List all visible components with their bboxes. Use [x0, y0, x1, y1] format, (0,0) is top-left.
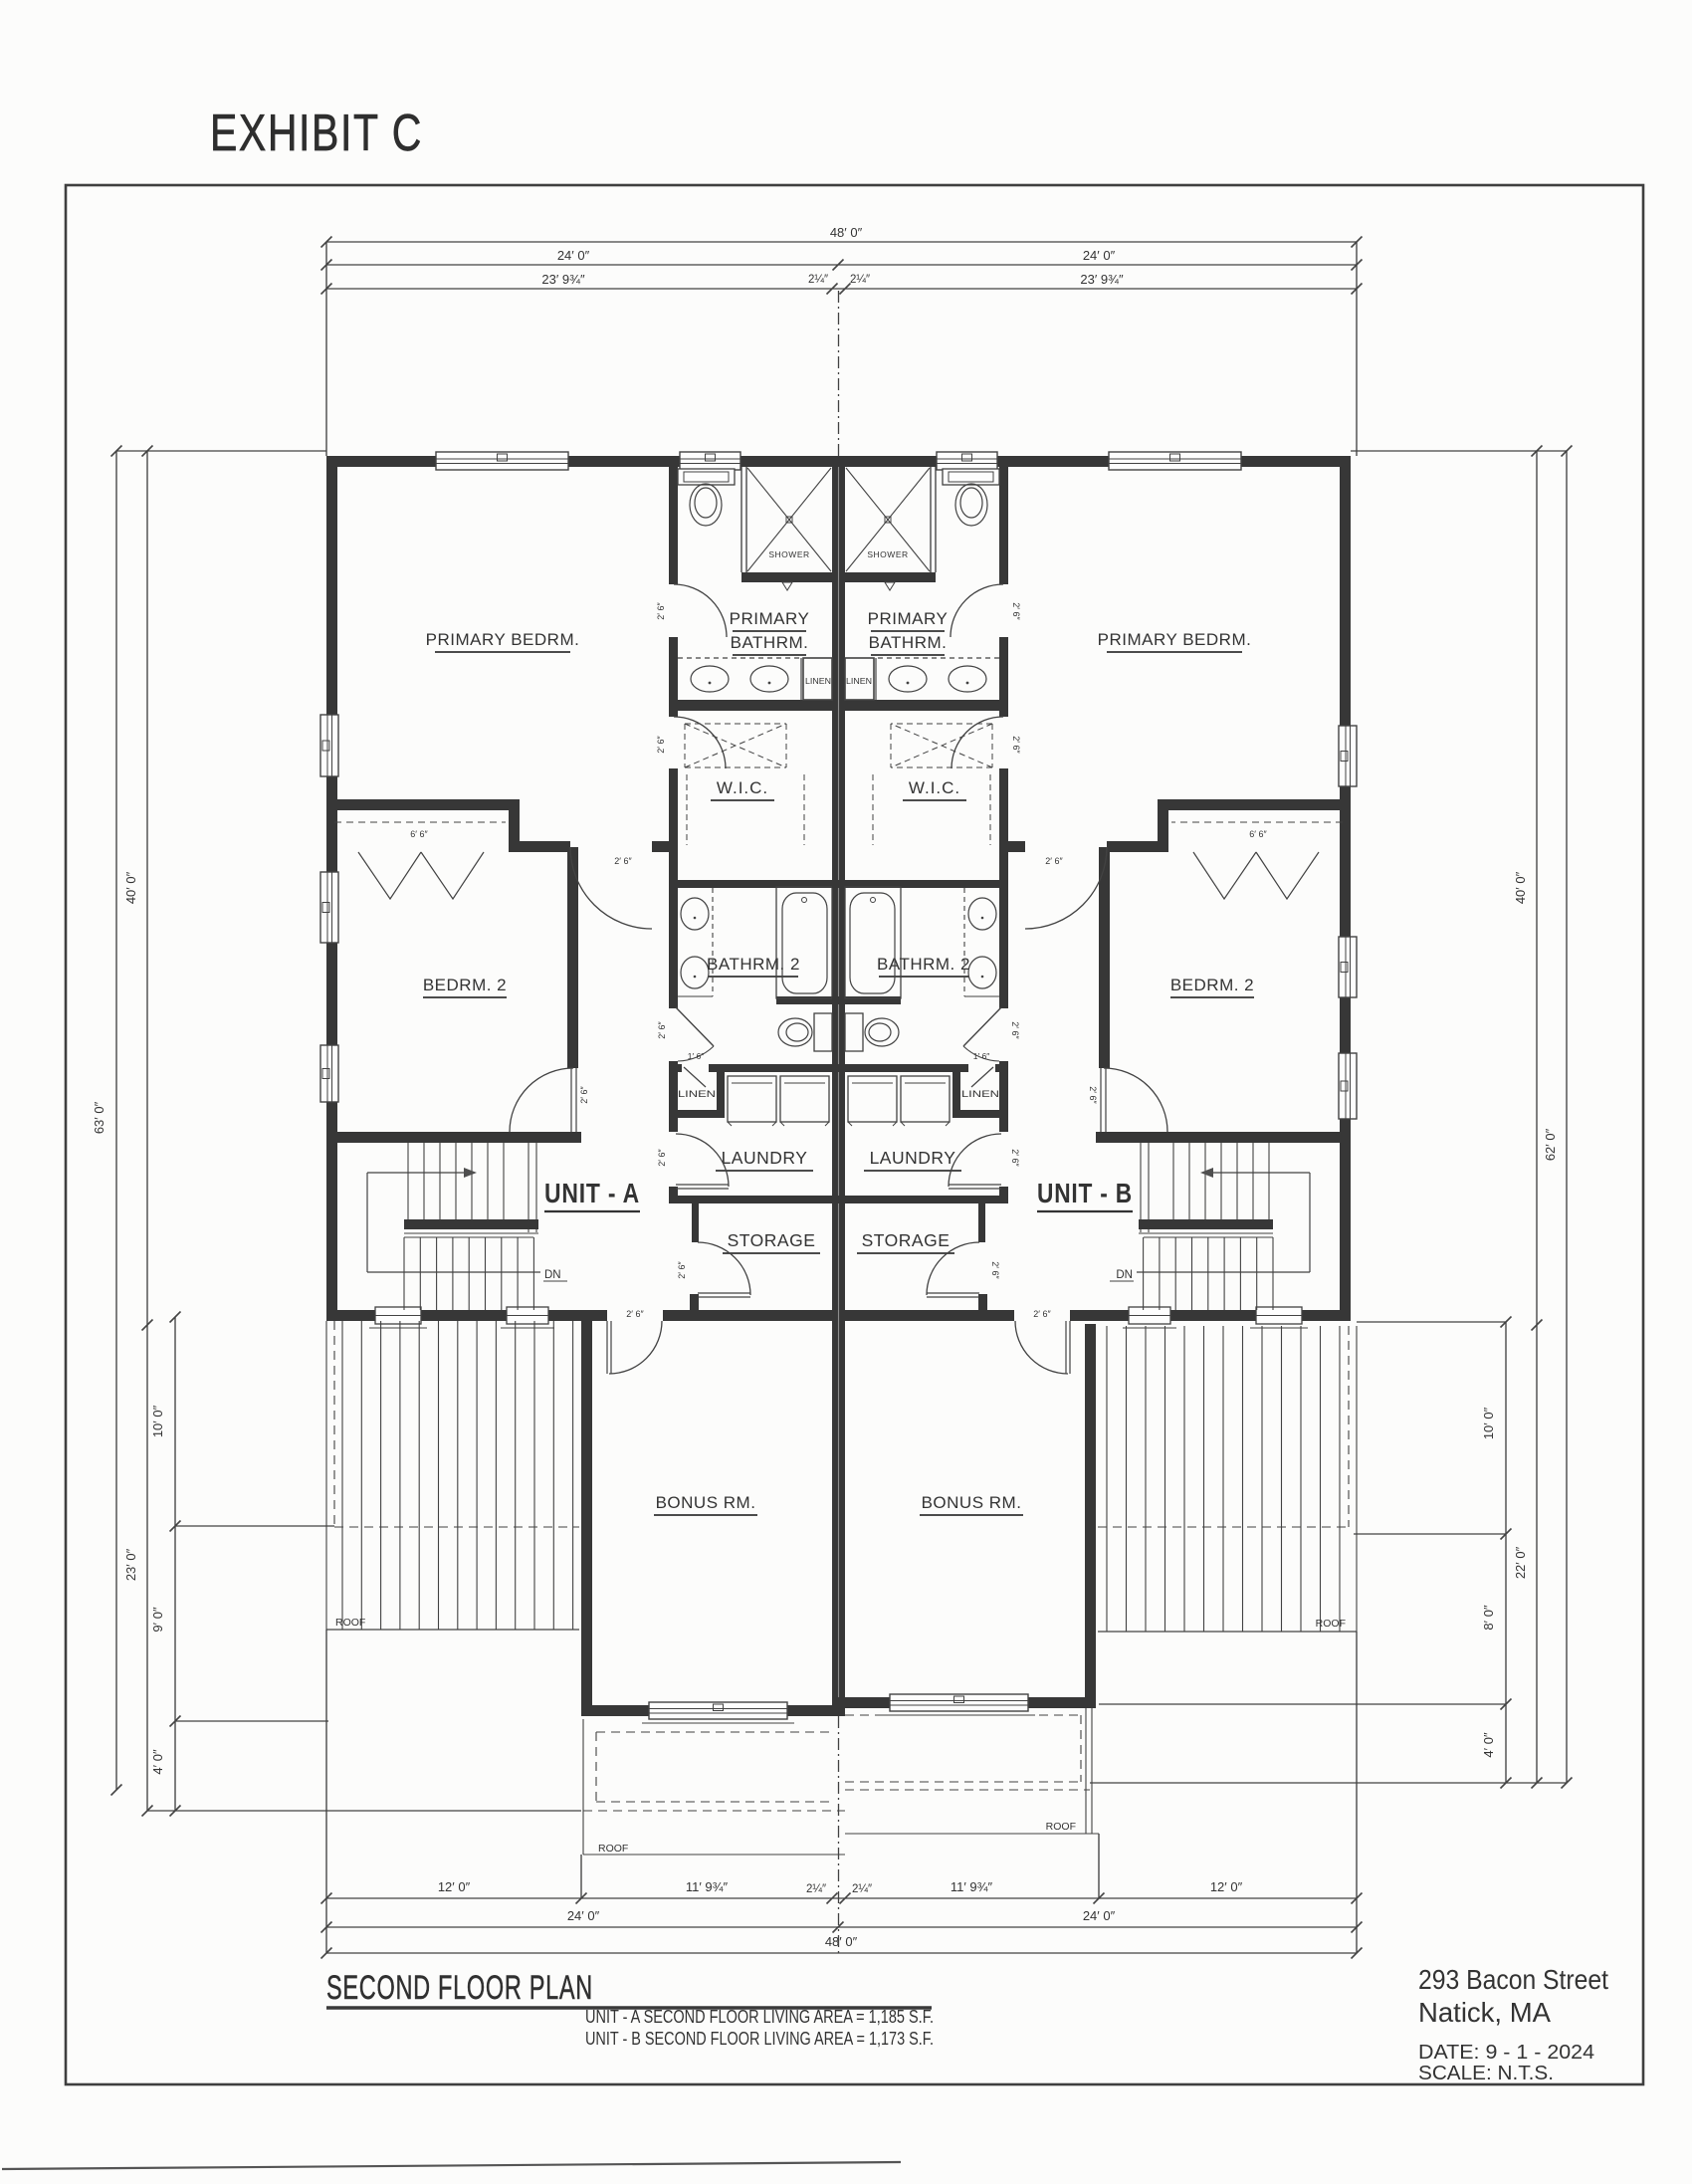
- svg-text:2′ 6″: 2′ 6″: [614, 856, 632, 866]
- svg-text:2′ 6″: 2′ 6″: [626, 1309, 644, 1319]
- svg-text:1′ 6″: 1′ 6″: [973, 1051, 989, 1061]
- svg-text:293 Bacon Street: 293 Bacon Street: [1418, 1964, 1608, 1995]
- svg-text:ROOF: ROOF: [598, 1843, 628, 1855]
- svg-text:UNIT - A: UNIT - A: [544, 1178, 640, 1208]
- svg-text:40′ 0″: 40′ 0″: [1513, 871, 1528, 904]
- svg-text:PRIMARY: PRIMARY: [868, 609, 949, 628]
- svg-text:SECOND FLOOR PLAN: SECOND FLOOR PLAN: [326, 1969, 593, 2007]
- svg-text:BEDRM. 2: BEDRM. 2: [1170, 976, 1254, 994]
- svg-text:24′ 0″: 24′ 0″: [1083, 248, 1116, 263]
- svg-text:2′ 6″: 2′ 6″: [1045, 856, 1063, 866]
- svg-text:W.I.C.: W.I.C.: [717, 778, 768, 797]
- svg-text:BEDRM. 2: BEDRM. 2: [423, 976, 507, 994]
- svg-text:LAUNDRY: LAUNDRY: [870, 1148, 956, 1168]
- svg-text:BATHRM.: BATHRM.: [869, 633, 948, 652]
- svg-text:LINEN: LINEN: [805, 677, 831, 686]
- svg-text:BATHRM.: BATHRM.: [731, 633, 809, 652]
- svg-text:STORAGE: STORAGE: [862, 1230, 951, 1250]
- svg-text:EXHIBIT C: EXHIBIT C: [210, 105, 423, 162]
- svg-text:1′ 6″: 1′ 6″: [688, 1051, 704, 1061]
- svg-text:DATE: 9 - 1 - 2024: DATE: 9 - 1 - 2024: [1418, 2041, 1594, 2064]
- svg-text:SHOWER: SHOWER: [768, 549, 809, 559]
- svg-text:2′ 6″: 2′ 6″: [579, 1085, 589, 1103]
- svg-text:UNIT - B: UNIT - B: [1037, 1178, 1133, 1208]
- svg-text:2′ 6″: 2′ 6″: [656, 601, 666, 619]
- svg-text:PRIMARY BEDRM.: PRIMARY BEDRM.: [426, 630, 580, 649]
- svg-text:DN: DN: [1116, 1269, 1133, 1281]
- svg-text:10′ 0″: 10′ 0″: [1481, 1407, 1496, 1439]
- svg-text:BATHRM. 2: BATHRM. 2: [877, 955, 970, 974]
- svg-text:9′ 0″: 9′ 0″: [150, 1607, 165, 1633]
- svg-text:12′ 0″: 12′ 0″: [438, 1879, 471, 1894]
- svg-text:8′ 0″: 8′ 0″: [1481, 1605, 1496, 1631]
- svg-text:2′ 6″: 2′ 6″: [1033, 1309, 1051, 1319]
- svg-text:48′ 0″: 48′ 0″: [830, 225, 863, 240]
- svg-text:48′ 0″: 48′ 0″: [825, 1934, 858, 1949]
- svg-text:LINEN: LINEN: [846, 677, 872, 686]
- svg-text:24′ 0″: 24′ 0″: [567, 1908, 600, 1923]
- svg-text:2¼″: 2¼″: [852, 1883, 872, 1895]
- svg-text:6′ 6″: 6′ 6″: [1249, 829, 1267, 839]
- svg-text:PRIMARY BEDRM.: PRIMARY BEDRM.: [1098, 630, 1252, 649]
- svg-text:ROOF: ROOF: [335, 1617, 365, 1629]
- svg-text:23′ 0″: 23′ 0″: [123, 1548, 138, 1581]
- svg-text:24′ 0″: 24′ 0″: [1083, 1908, 1116, 1923]
- svg-text:23′ 9¾″: 23′ 9¾″: [1080, 272, 1124, 287]
- svg-text:SHOWER: SHOWER: [867, 549, 908, 559]
- svg-text:4′ 0″: 4′ 0″: [150, 1749, 165, 1775]
- svg-text:2′ 6″: 2′ 6″: [990, 1261, 1000, 1279]
- svg-text:SCALE: N.T.S.: SCALE: N.T.S.: [1418, 2062, 1554, 2084]
- svg-text:2′ 6″: 2′ 6″: [1010, 1149, 1020, 1167]
- svg-text:2¼″: 2¼″: [850, 274, 870, 286]
- svg-text:6′ 6″: 6′ 6″: [410, 829, 428, 839]
- svg-text:DN: DN: [544, 1269, 561, 1281]
- svg-text:22′ 0″: 22′ 0″: [1513, 1546, 1528, 1579]
- svg-text:2′ 6″: 2′ 6″: [656, 735, 666, 753]
- svg-text:BONUS RM.: BONUS RM.: [656, 1493, 756, 1512]
- svg-text:2¼″: 2¼″: [808, 274, 828, 286]
- svg-text:4′ 0″: 4′ 0″: [1481, 1732, 1496, 1758]
- svg-text:62′ 0″: 62′ 0″: [1543, 1128, 1558, 1161]
- svg-text:2′ 6″: 2′ 6″: [677, 1260, 687, 1278]
- svg-text:11′ 9¾″: 11′ 9¾″: [686, 1879, 729, 1894]
- svg-text:ROOF: ROOF: [1046, 1821, 1076, 1833]
- svg-text:LAUNDRY: LAUNDRY: [722, 1148, 808, 1168]
- svg-text:W.I.C.: W.I.C.: [909, 778, 960, 797]
- svg-text:2′ 6″: 2′ 6″: [1010, 1021, 1020, 1039]
- svg-text:ROOF: ROOF: [1316, 1618, 1346, 1630]
- svg-text:2′ 6″: 2′ 6″: [1011, 736, 1021, 754]
- svg-text:LINEN: LINEN: [678, 1089, 716, 1100]
- svg-text:UNIT - A SECOND FLOOR LIVING A: UNIT - A SECOND FLOOR LIVING AREA = 1,18…: [585, 2007, 934, 2027]
- svg-text:BONUS RM.: BONUS RM.: [922, 1493, 1022, 1512]
- svg-text:10′ 0″: 10′ 0″: [150, 1405, 165, 1437]
- svg-text:40′ 0″: 40′ 0″: [123, 871, 138, 904]
- svg-text:UNIT - B SECOND FLOOR LIVING A: UNIT - B SECOND FLOOR LIVING AREA = 1,17…: [585, 2029, 934, 2049]
- svg-text:12′ 0″: 12′ 0″: [1210, 1879, 1243, 1894]
- svg-text:2′ 6″: 2′ 6″: [657, 1020, 667, 1038]
- svg-text:2′ 6″: 2′ 6″: [1088, 1086, 1098, 1104]
- svg-text:2¼″: 2¼″: [806, 1883, 826, 1895]
- svg-text:2′ 6″: 2′ 6″: [1011, 602, 1021, 620]
- svg-text:23′ 9¾″: 23′ 9¾″: [541, 272, 585, 287]
- svg-text:PRIMARY: PRIMARY: [730, 609, 810, 628]
- svg-text:Natick, MA: Natick, MA: [1418, 1997, 1551, 2028]
- svg-text:BATHRM. 2: BATHRM. 2: [707, 955, 800, 974]
- svg-text:LINEN: LINEN: [961, 1089, 999, 1100]
- svg-text:11′ 9¾″: 11′ 9¾″: [951, 1879, 993, 1894]
- svg-text:63′ 0″: 63′ 0″: [92, 1101, 106, 1134]
- svg-text:STORAGE: STORAGE: [728, 1230, 816, 1250]
- svg-text:2′ 6″: 2′ 6″: [657, 1148, 667, 1166]
- svg-text:24′ 0″: 24′ 0″: [557, 248, 590, 263]
